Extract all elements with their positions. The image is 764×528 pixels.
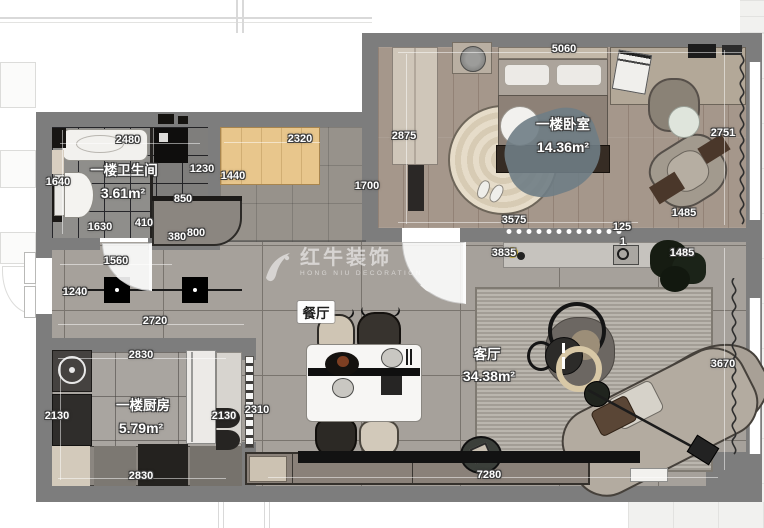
brand-bull-icon (262, 248, 294, 286)
dimension-line (224, 142, 320, 143)
wall-bedroom-left (362, 33, 378, 242)
exterior-line (236, 0, 238, 33)
laptop (688, 44, 716, 58)
exterior-tiles (628, 502, 764, 528)
dimension-line (268, 477, 718, 478)
bed-pillow (504, 64, 550, 86)
room-label-kitchen: 一楼厨房 (116, 394, 170, 414)
ottoman (668, 106, 700, 138)
exterior-line (223, 502, 224, 528)
exterior-tiles (740, 0, 764, 33)
floorplan-canvas: 红牛装饰 HONG NIU DECORATION 一楼卫生间 3.61m² 一楼… (0, 0, 764, 528)
bath-shelf-block (52, 128, 66, 148)
dimension-line (724, 248, 725, 470)
bench-cushion-beige (249, 456, 287, 482)
room-label-bedroom: 一楼卧室 (536, 113, 590, 133)
room-label-bathroom: 一楼卫生间 (90, 159, 158, 179)
dimension-line (62, 130, 63, 234)
sink-dark (216, 408, 240, 428)
wall-bath-top (36, 112, 376, 127)
exterior-line (218, 502, 219, 528)
wardrobe-cabinet (220, 127, 320, 185)
shoe-cabinet (152, 196, 242, 246)
stove-burner-dot (69, 367, 75, 373)
exterior-line (269, 502, 270, 528)
wall-hung-item (178, 116, 188, 124)
cutlery (406, 349, 408, 365)
bedroom-curtain (735, 48, 748, 228)
cutlery (410, 349, 412, 365)
counter-segment-black (138, 444, 188, 486)
curtain-track-dots (504, 228, 622, 235)
speaker-cone (617, 248, 629, 260)
watermark-subtitle: HONG NIU DECORATION (300, 270, 423, 277)
room-label-living: 客厅 (474, 343, 501, 363)
counter-segment-beige (52, 446, 90, 486)
living-curtain (727, 278, 740, 458)
counter-segment-gray (190, 446, 242, 486)
exterior-window (0, 62, 36, 108)
spotlight-dot (193, 288, 197, 292)
bathtub-basin (76, 135, 124, 153)
sink-dark (216, 430, 240, 450)
bedroom-closet (392, 47, 438, 165)
table-lamp (460, 46, 486, 72)
room-area-bathroom: 3.61m² (101, 185, 145, 201)
centerpiece-flower (337, 356, 349, 367)
wall-bath-bottom-a (36, 238, 100, 250)
dimension-line (58, 478, 226, 479)
wall-hung-item (158, 114, 174, 124)
dimension-line (58, 324, 244, 325)
dimension-line (406, 54, 407, 224)
table-runner (308, 368, 420, 376)
bench-divider (292, 454, 293, 483)
plate (332, 378, 354, 398)
desk-books (612, 49, 652, 94)
spotlight-dot (115, 288, 119, 292)
bedroom-closet-door (408, 165, 424, 211)
dimension-line (58, 358, 226, 359)
dimension-line (724, 50, 725, 225)
bed-headboard (498, 47, 608, 59)
plant (660, 266, 690, 292)
fridge-handle (191, 352, 193, 442)
exterior-line (0, 22, 372, 23)
dining-table (306, 344, 422, 422)
wall-bed-living-a (362, 228, 402, 242)
wall-bottom (36, 486, 762, 502)
washing-machine-door (159, 133, 168, 142)
watermark: 红牛装饰 HONG NIU DECORATION (262, 248, 423, 286)
kitchen-sliding-door (245, 356, 254, 448)
exterior-window (0, 150, 36, 188)
white-shelf-piece (630, 468, 668, 482)
decor-ball-black (517, 252, 525, 260)
watermark-brand: 红牛装饰 (300, 248, 423, 268)
room-label-dining: 餐厅 (298, 301, 335, 323)
room-area-kitchen: 5.79m² (119, 420, 163, 436)
hall-light-line (62, 289, 242, 291)
room-area-bedroom: 14.36m² (537, 139, 589, 155)
bed-pillow (556, 64, 602, 86)
dimension-line (398, 52, 742, 53)
shoe-cabinet-top-edge (152, 196, 242, 201)
exterior-line (264, 502, 265, 528)
kitchen-counter-left (52, 394, 92, 446)
exterior-line (242, 0, 244, 33)
exterior-line (0, 17, 372, 19)
dimension-line (60, 264, 172, 265)
plate (381, 348, 403, 368)
entry-door-leaf (24, 286, 36, 318)
bedroom-window (749, 62, 761, 220)
room-area-living: 34.38m² (463, 368, 515, 384)
dimension-line (60, 362, 61, 480)
entry-door-leaf (24, 252, 36, 284)
dimension-line (60, 143, 200, 144)
wall-left-upper (36, 112, 52, 258)
counter-segment-gray (94, 446, 136, 486)
dimension-line (398, 222, 638, 223)
corridor-edge-line (220, 240, 366, 242)
